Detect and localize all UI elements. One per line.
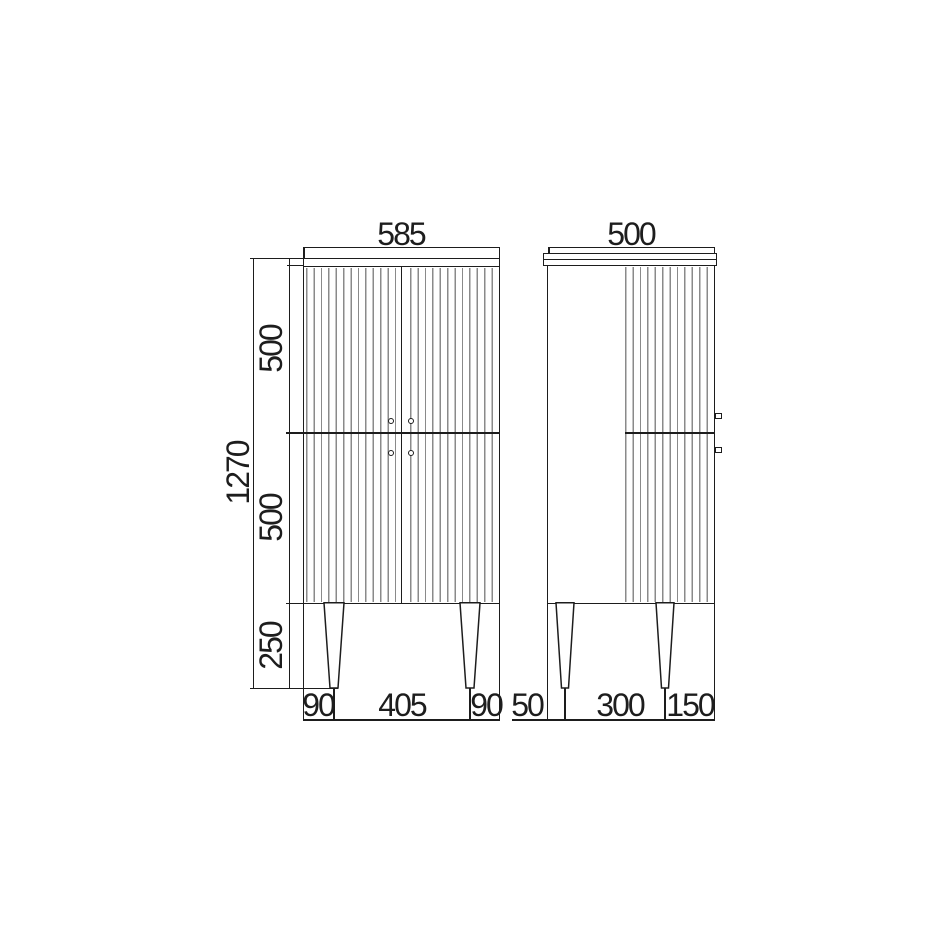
side-base-dim-ext-right — [714, 604, 716, 721]
side-knob-upper — [715, 413, 722, 419]
side-base-center-label: 300 — [596, 689, 643, 721]
technical-drawing: 585 1270 500 500 250 — [0, 0, 950, 950]
side-leg-back — [655, 602, 675, 689]
side-leg-front — [555, 602, 575, 689]
side-base-left-label: 50 — [511, 689, 543, 721]
side-base-dim-ext-left — [547, 604, 549, 721]
side-base-dim-tick-leg-back — [664, 688, 666, 721]
side-fluting — [625, 267, 714, 602]
side-cabinet-top-edge-line — [544, 259, 716, 260]
side-base-dim-tick-leg-front — [564, 688, 566, 721]
side-middle-door-split — [625, 432, 716, 434]
side-view: 500 50 300 150 — [0, 0, 950, 950]
side-base-right-label: 150 — [666, 689, 713, 721]
side-knob-lower — [715, 447, 722, 453]
side-depth-label: 500 — [607, 218, 654, 250]
